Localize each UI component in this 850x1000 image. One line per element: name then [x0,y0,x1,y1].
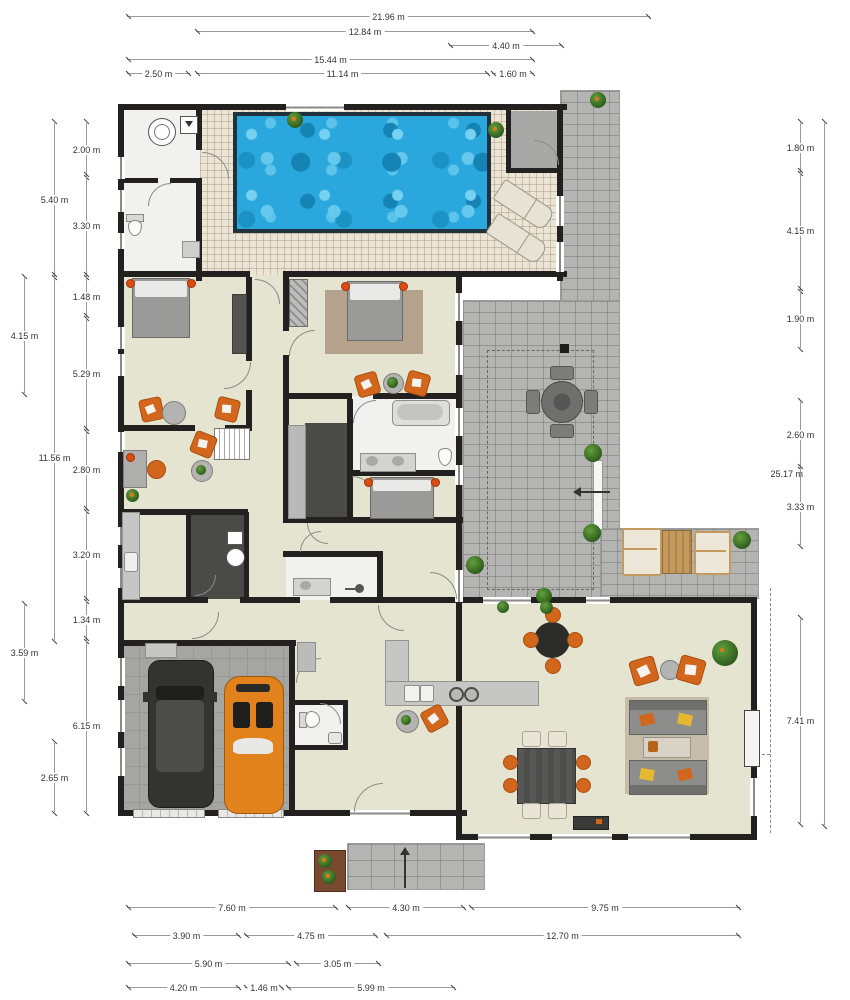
dim-line: 1.60 m [492,73,534,74]
living-room-floor [462,600,754,836]
dim-label: 7.60 m [215,903,249,913]
dim-label: 5.90 m [192,959,226,969]
tv-cabinet [573,816,609,830]
dim-label: 15.44 m [311,55,350,65]
dining-chair [545,658,561,674]
window [556,196,564,226]
bed-bedroom2 [370,477,434,519]
window [478,834,530,841]
dining-chair-cream [522,803,541,819]
kitchen-sink [404,685,420,702]
dim-label: 4.15 m [784,226,818,236]
kitchen-sink [420,685,434,702]
dim-label: 1.90 m [784,314,818,324]
dim-line: 2.80 m [86,430,87,510]
sofa-back [630,701,706,710]
dim-line: 1.90 m [800,290,801,348]
patio-gate [593,460,603,530]
wall [377,551,383,603]
dim-line: 2.00 m [86,123,87,176]
window [586,597,610,604]
swimming-pool [233,112,491,233]
dim-label: 2.80 m [70,465,104,475]
kitchenette-sink [124,552,138,572]
patio-chair [526,390,540,414]
wardrobe-bedroom1 [232,294,247,354]
walkin-closet [305,423,347,519]
dim-label: 4.20 m [167,983,201,993]
dim-line: 3.59 m [24,605,25,700]
vanity-bath2 [293,578,331,596]
dim-label: 1.46 m [247,983,281,993]
outdoor-sofa [694,531,731,575]
hall-closet [297,642,316,672]
sports-car-seat [233,702,250,728]
sofa-back [630,785,706,794]
wc-sink [328,732,342,744]
window [117,327,125,349]
window [117,157,125,179]
wall [186,512,191,598]
stairs [214,428,250,460]
dim-line: 12.84 m [196,31,534,32]
dim-line: 7.60 m [127,907,337,908]
dim-label: 2.60 m [784,430,818,440]
dim-label: 4.40 m [489,41,523,51]
round-table-black [534,622,570,658]
dim-line: 9.75 m [470,907,740,908]
dim-line: 5.99 m [287,987,455,988]
dim-line: 5.29 m [86,317,87,430]
wall [283,355,289,425]
bed-master [347,281,403,341]
patio-overhang-dashed [487,350,594,590]
wall [118,271,250,277]
patio-table [541,381,583,423]
window [117,658,125,686]
plant-icon [387,377,398,388]
plant-large-icon [712,640,738,666]
dim-line: 4.15 m [800,172,801,290]
dim-label: 3.05 m [321,959,355,969]
dim-label: 12.84 m [346,27,385,37]
tv-cabinet-item [596,819,602,824]
dining-chair-cream [548,731,567,747]
suv-mirror [211,692,217,702]
outdoor-sofa [622,528,662,576]
plant-icon [540,601,553,614]
sink-basin [366,456,378,466]
wall [347,399,353,517]
dim-label: 2.50 m [142,69,176,79]
dim-label: 1.34 m [70,615,104,625]
plant-icon [196,465,206,475]
dim-line: 1.34 m [86,600,87,640]
dim-label: 1.60 m [496,69,530,79]
dim-line: 3.20 m [86,510,87,600]
sink-basin [392,456,404,466]
dim-label: 12.70 m [543,931,582,941]
dim-label: 3.33 m [784,502,818,512]
pool-storage-wall [506,108,511,172]
sofa-pillow-yellow [639,768,655,781]
window [455,408,463,436]
entrance-arrow-head [400,847,410,855]
window [455,345,463,375]
dim-line: 1.46 m [245,987,283,988]
dining-chair-cream [548,803,567,819]
patio-entrance-arrow-head [573,487,581,497]
dim-line: 3.05 m [295,963,380,964]
window [556,242,564,272]
fireplace [744,710,760,767]
wall [196,180,202,281]
bed-light [431,478,440,487]
stove-burner [464,687,479,702]
wall [118,425,195,431]
wardrobe-master [289,279,308,327]
dim-line: 15.44 m [127,59,534,60]
dim-line: 4.40 m [449,45,563,46]
armchair [138,396,165,423]
dining-chair-cream [522,731,541,747]
window [552,834,612,841]
dining-chair [567,632,583,648]
dim-line: 5.40 m [54,123,55,276]
bed-light [126,279,135,288]
wall [283,551,383,557]
dim-label: 3.90 m [170,931,204,941]
bed-light [187,279,196,288]
dining-table [517,748,576,804]
window [455,293,463,321]
dryer-glyph [185,121,193,127]
dim-label: 7.41 m [784,716,818,726]
plant-icon [583,524,601,542]
dim-line: 2.60 m [800,402,801,468]
dim-label: 11.56 m [36,453,74,463]
patio-entrance-arrow [580,491,610,493]
dim-line: 4.20 m [127,987,240,988]
sports-car-grill [236,684,270,692]
sink-basin [300,581,311,590]
dim-line: 3.90 m [133,935,240,936]
patio-north [560,90,620,304]
dim-line: 12.70 m [385,935,740,936]
wall [295,745,345,750]
outdoor-sofa-divider [624,548,657,550]
patio-chair [584,390,598,414]
bathtub-basin [397,404,443,420]
dim-line: 2.65 m [54,743,55,812]
dim-label: 5.40 m [38,195,72,205]
window [750,778,758,816]
dim-label: 1.48 m [70,292,104,302]
property-dashed-line [770,588,771,833]
wall [240,597,300,603]
closet-shelf [288,425,306,519]
dim-label: 1.80 m [784,143,818,153]
dining-chair [503,755,518,770]
sofa [629,760,707,795]
dim-line: 3.30 m [86,176,87,276]
sports-car-windshield [233,738,273,754]
dim-label: 3.59 m [8,648,42,658]
dim-label: 4.30 m [389,903,423,913]
outdoor-sofa-divider [696,550,726,552]
dim-label: 21.96 m [369,12,408,22]
stove-burner [449,687,464,702]
entrance-stoop [347,843,485,890]
bed-bedroom1 [132,278,190,338]
suv-roof [156,700,204,772]
desk-lamp [126,453,135,462]
window [628,834,690,841]
plant-icon [497,601,509,613]
dim-label: 4.15 m [8,331,42,341]
dim-line: 4.15 m [24,278,25,393]
dim-label: 6.15 m [70,721,104,731]
plant-icon [401,715,411,725]
pool-storage-wall [506,168,562,173]
desk-stool [147,460,166,479]
garage-door [133,809,205,818]
bed-light [341,282,350,291]
wall [246,390,252,425]
bed-light [399,282,408,291]
suv-windshield [156,686,204,700]
dim-line: 1.48 m [86,276,87,317]
dim-label: 11.14 m [324,69,362,79]
dim-line: 25.17 m [824,123,825,825]
shower-pole [345,588,357,590]
plant-icon [733,531,751,549]
plant-icon [126,489,139,502]
dim-line: 6.15 m [86,640,87,812]
dim-label: 3.20 m [70,550,104,560]
window [117,233,125,249]
dim-line: 11.56 m [54,276,55,640]
bed-light [364,478,373,487]
dim-line: 5.90 m [127,963,290,964]
patio-chair [550,366,574,380]
dining-chair [576,755,591,770]
coffee-table-decor [648,741,658,752]
garage-step [145,643,177,658]
entrance-arrow [404,854,406,888]
window [117,354,125,376]
window [117,432,125,452]
plant-icon [322,870,336,884]
dining-chair [576,778,591,793]
wall [283,393,352,399]
suv-mirror [143,692,149,702]
wall [283,271,567,277]
patio-chair [550,424,574,438]
dim-line: 21.96 m [127,16,650,17]
window [117,748,125,776]
window [117,190,125,212]
plant-icon [318,854,332,868]
outdoor-wood-table [662,530,692,574]
wall [289,640,295,812]
window [286,104,344,111]
dim-label: 2.65 m [38,773,72,783]
wall [343,700,348,750]
floor-plan-canvas: 21.96 m 12.84 m 4.40 m 15.44 m 2.50 m 11… [0,0,850,1000]
dim-label: 5.29 m [70,369,104,379]
dim-label: 9.75 m [588,903,622,913]
dim-line: 4.30 m [347,907,465,908]
pantry-appliance [227,531,243,545]
plant-icon [466,556,484,574]
sports-car-seat [256,702,273,728]
pantry-washer [226,548,245,567]
dim-label: 4.75 m [294,931,328,941]
sofa-pillow-orange [677,768,693,782]
dim-label: 5.99 m [354,983,388,993]
plant-icon [287,112,303,128]
dining-chair [503,778,518,793]
dim-line: 3.33 m [800,468,801,545]
utility-vanity [182,241,200,258]
window [117,700,125,732]
plant-icon [590,92,606,108]
dim-line: 11.14 m [196,73,489,74]
plant-icon [584,444,602,462]
dining-chair [523,632,539,648]
window [455,465,463,485]
dim-line: 7.41 m [800,619,801,823]
dim-label: 2.00 m [70,145,104,155]
dim-label: 3.30 m [70,221,104,231]
dim-line: 1.80 m [800,123,801,172]
dim-line: 2.50 m [127,73,190,74]
washing-machine-drum [154,124,170,140]
sofa-pillow-orange [639,712,655,726]
side-table [162,401,186,425]
sofa-pillow-yellow [677,713,693,727]
dim-line: 4.75 m [245,935,377,936]
wall [170,178,202,183]
plant-icon [488,122,504,138]
patio-column [560,344,569,353]
sofa [629,700,707,735]
